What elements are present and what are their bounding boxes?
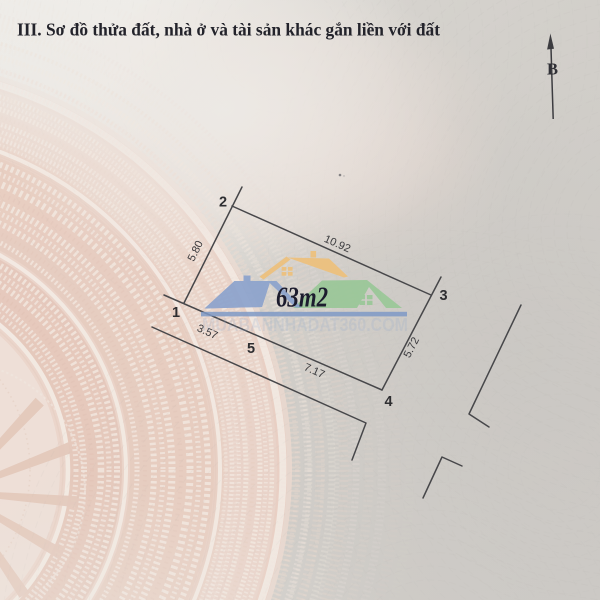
svg-text:5: 5 <box>247 341 255 357</box>
svg-text:III. Sơ đồ thửa đất, nhà ở và: III. Sơ đồ thửa đất, nhà ở và tài sản kh… <box>17 20 440 40</box>
svg-text:B: B <box>547 60 558 79</box>
svg-text:3: 3 <box>439 288 447 304</box>
svg-text:1: 1 <box>172 305 180 321</box>
svg-text:2: 2 <box>219 195 227 211</box>
svg-text:MUABANNHADAT360.COM: MUABANNHADAT360.COM <box>202 314 408 335</box>
svg-text:4: 4 <box>384 394 392 410</box>
svg-text:63m2: 63m2 <box>276 282 328 314</box>
